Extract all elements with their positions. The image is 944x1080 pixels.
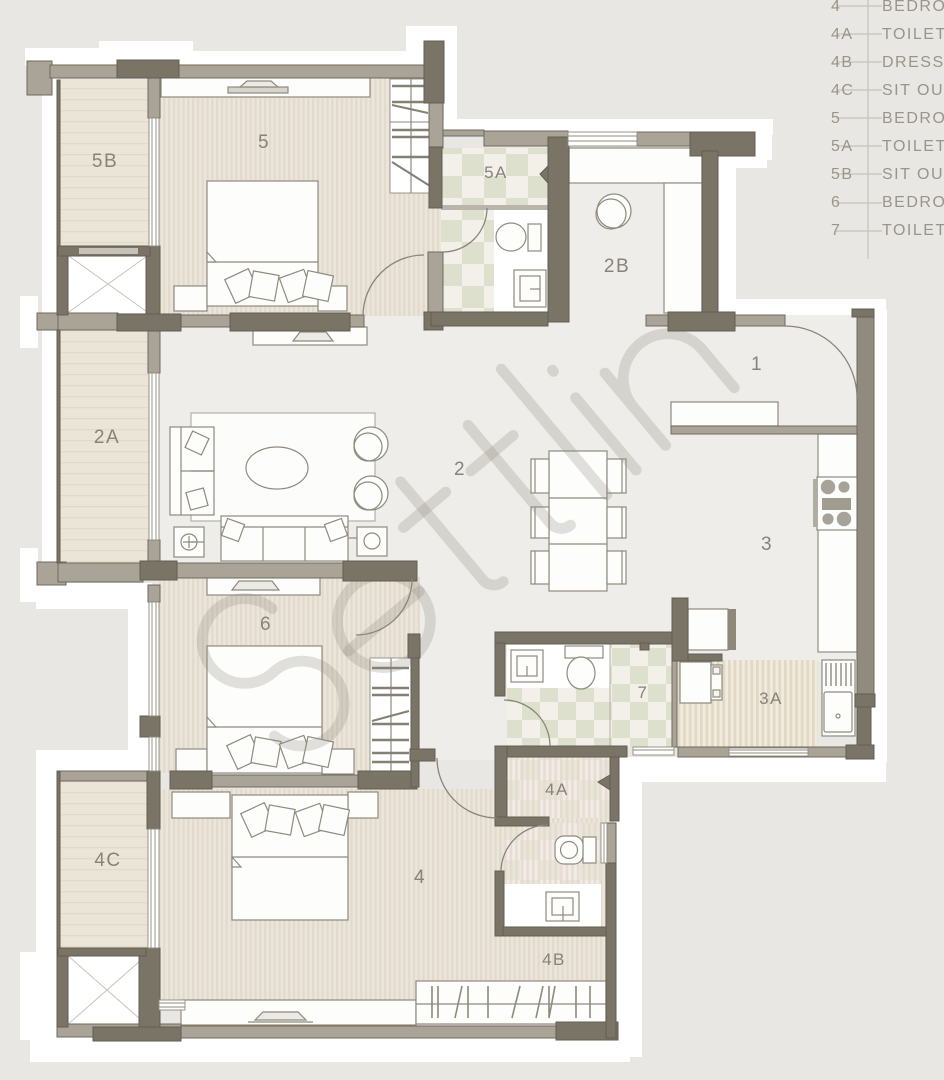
svg-text:4B: 4B bbox=[831, 54, 854, 71]
svg-text:TOILET: TOILET bbox=[882, 222, 944, 239]
svg-text:4A: 4A bbox=[831, 26, 854, 43]
svg-text:SIT OUT: SIT OUT bbox=[882, 166, 944, 183]
svg-text:TOILET: TOILET bbox=[882, 138, 944, 155]
svg-text:7: 7 bbox=[638, 683, 649, 702]
svg-text:4C: 4C bbox=[94, 850, 121, 871]
svg-text:5: 5 bbox=[258, 132, 270, 153]
svg-text:4B: 4B bbox=[542, 950, 566, 969]
svg-text:6: 6 bbox=[831, 194, 841, 211]
svg-text:5: 5 bbox=[831, 110, 841, 127]
svg-text:SIT OUT: SIT OUT bbox=[882, 82, 944, 99]
svg-text:5B: 5B bbox=[92, 151, 118, 172]
svg-text:7: 7 bbox=[831, 222, 841, 239]
svg-text:BEDROOM: BEDROOM bbox=[882, 110, 944, 127]
svg-text:2B: 2B bbox=[604, 256, 630, 277]
svg-text:2: 2 bbox=[454, 459, 466, 480]
svg-text:BEDROOM: BEDROOM bbox=[882, 0, 944, 15]
svg-text:TOILET: TOILET bbox=[882, 26, 944, 43]
svg-text:6: 6 bbox=[260, 614, 272, 635]
svg-text:1: 1 bbox=[751, 354, 763, 375]
svg-text:BEDROOM: BEDROOM bbox=[882, 194, 944, 211]
svg-text:4: 4 bbox=[831, 0, 841, 15]
svg-text:4A: 4A bbox=[545, 780, 569, 799]
svg-text:3A: 3A bbox=[759, 689, 783, 708]
svg-text:DRESSING: DRESSING bbox=[882, 54, 944, 71]
svg-text:5B: 5B bbox=[831, 166, 854, 183]
svg-text:4C: 4C bbox=[831, 82, 854, 99]
svg-text:3: 3 bbox=[761, 534, 773, 555]
svg-text:2A: 2A bbox=[94, 427, 120, 448]
svg-text:5A: 5A bbox=[484, 163, 508, 182]
svg-text:5A: 5A bbox=[831, 138, 854, 155]
svg-text:4: 4 bbox=[414, 867, 426, 888]
